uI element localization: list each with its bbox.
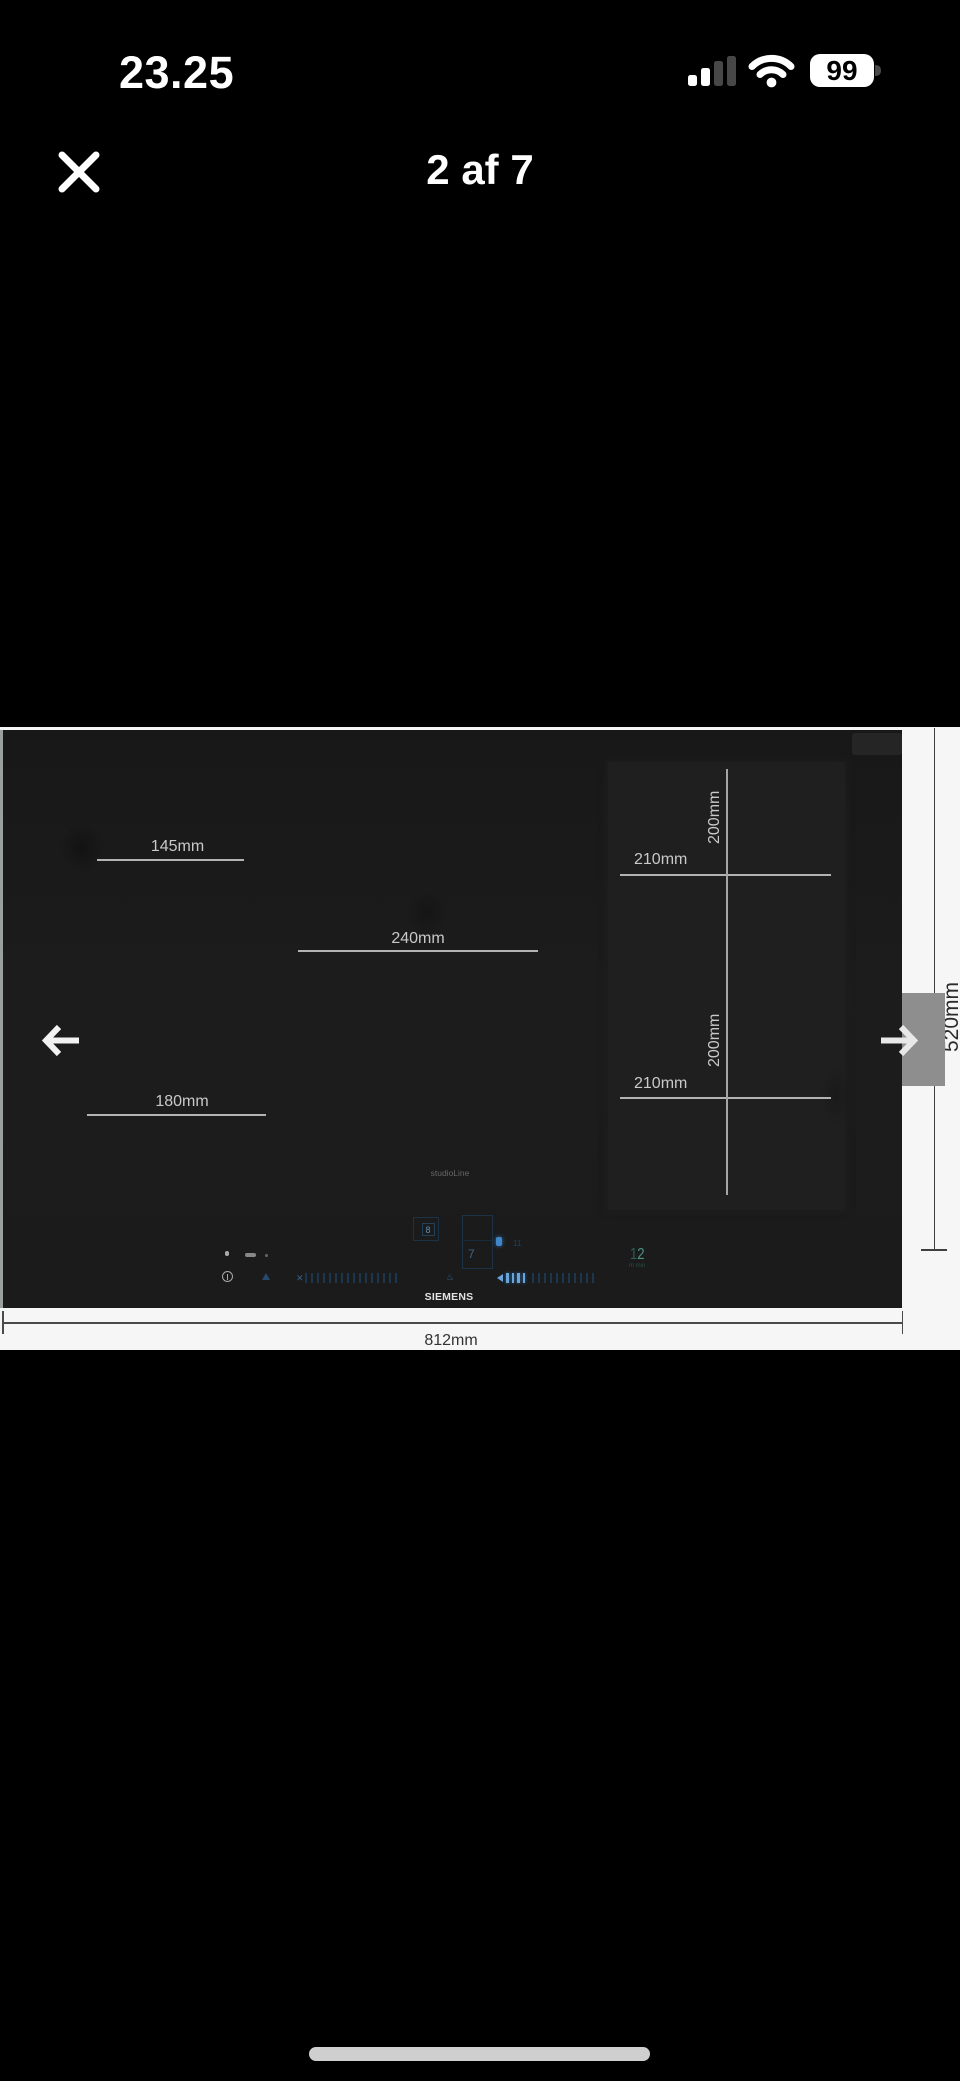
svg-text:99: 99 [826, 55, 857, 86]
